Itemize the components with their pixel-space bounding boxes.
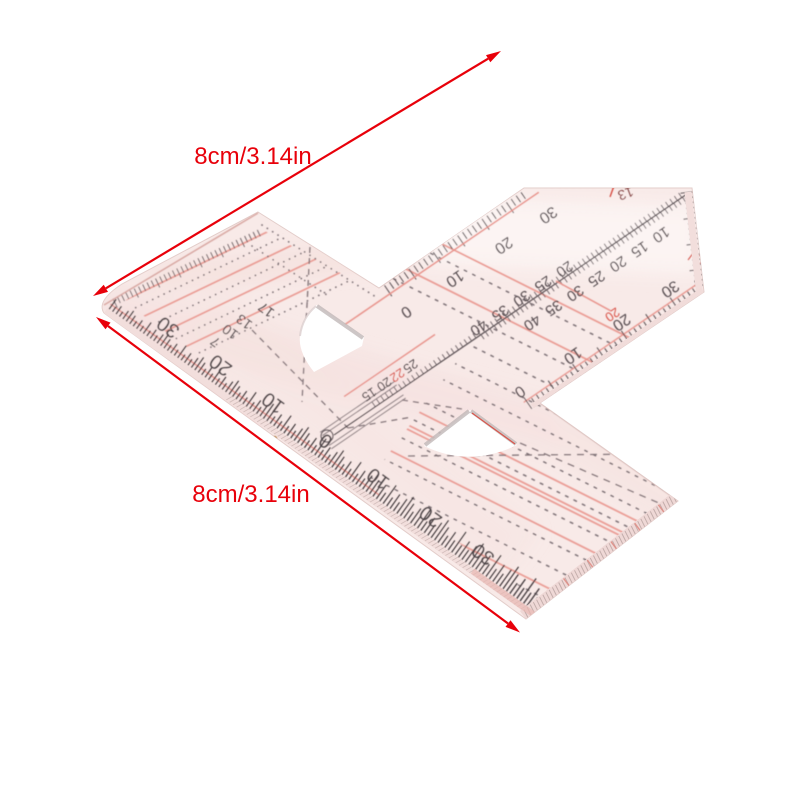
svg-text:8cm/3.14in: 8cm/3.14in [192, 481, 309, 508]
svg-text:8cm/3.14in: 8cm/3.14in [194, 143, 311, 170]
